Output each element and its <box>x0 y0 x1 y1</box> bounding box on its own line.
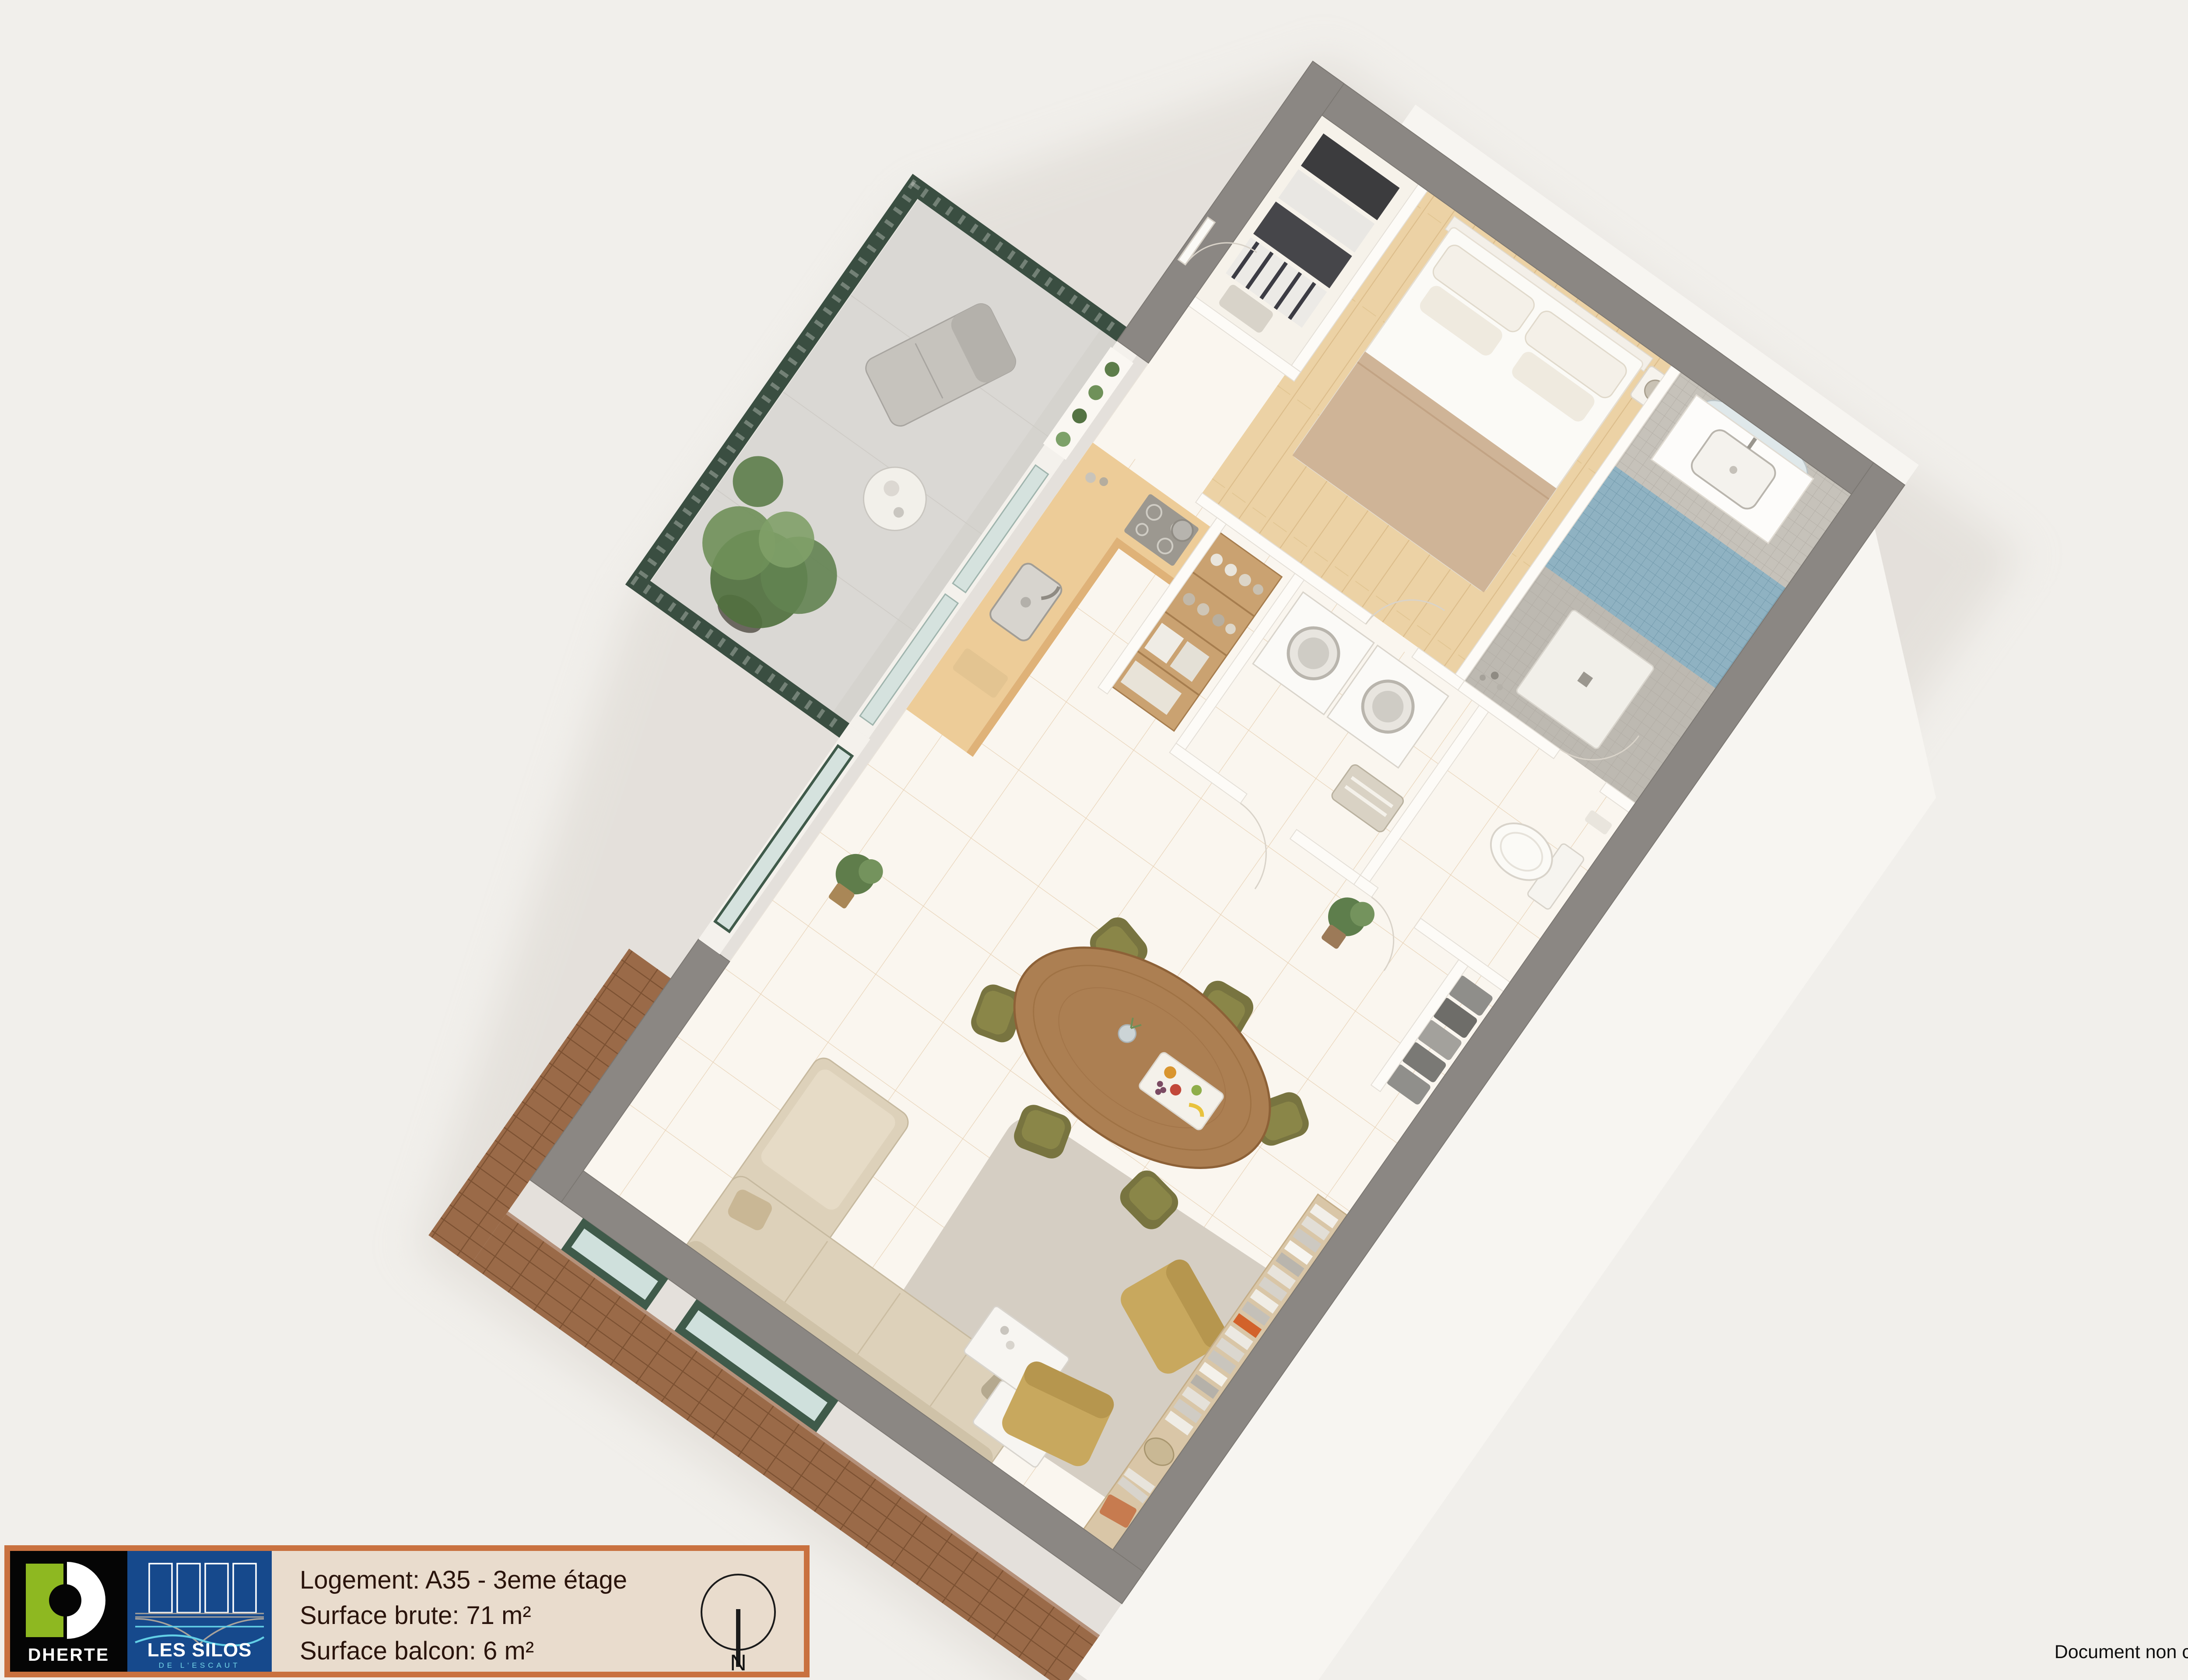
logement-line: Logement: A35 - 3eme étage <box>300 1562 673 1598</box>
apartment-render <box>244 0 2086 1680</box>
les-silos-logo: LES SILOS DE L'ESCAUT <box>127 1551 272 1672</box>
dherte-logo-text: DHERTE <box>28 1645 110 1665</box>
apartment-info: Logement: A35 - 3eme étage Surface brute… <box>272 1551 673 1672</box>
les-silos-title: LES SILOS <box>147 1639 252 1661</box>
page: DHERTE LES SILOS DE L'ESCAUT Logement: A… <box>0 0 2188 1680</box>
surface-brute-line: Surface brute: 71 m² <box>300 1598 673 1633</box>
info-panel: DHERTE LES SILOS DE L'ESCAUT Logement: A… <box>4 1545 810 1677</box>
disclaimer-text: Document non contractuel communiqué à ti… <box>2055 1641 2188 1663</box>
surface-balcon-line: Surface balcon: 6 m² <box>300 1633 673 1669</box>
les-silos-subtitle: DE L'ESCAUT <box>159 1661 241 1669</box>
north-indicator: N <box>673 1551 804 1672</box>
dherte-logo: DHERTE <box>10 1551 127 1672</box>
floor-plan-3d <box>0 0 2188 1680</box>
north-label: N <box>730 1650 747 1672</box>
